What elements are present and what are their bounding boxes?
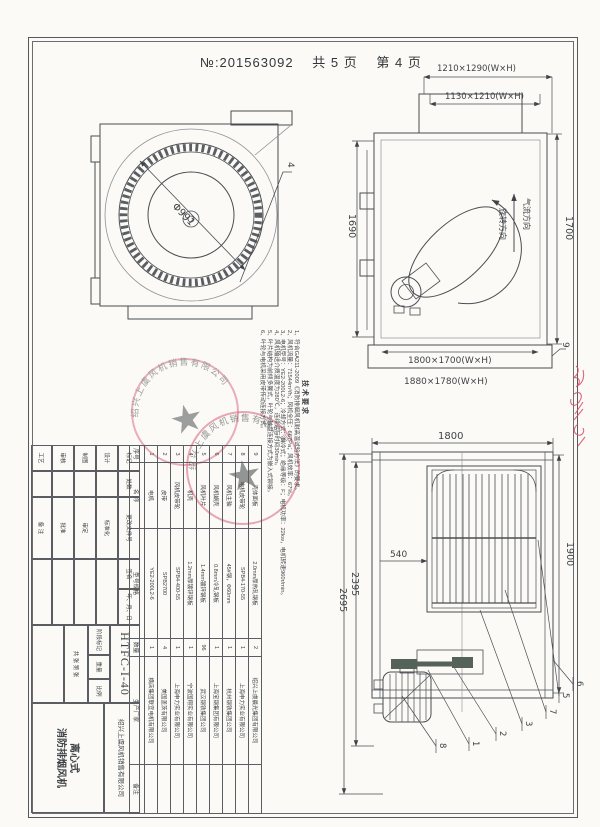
rear-leader-6: 6 bbox=[574, 681, 584, 686]
sheet-extra bbox=[31, 625, 64, 703]
base-dim-outer: 1880×1780(W×H) bbox=[404, 377, 488, 387]
tech-requirements-title: 技术要求 bbox=[300, 380, 310, 622]
dim-1690: 1690 bbox=[346, 214, 357, 238]
design-label: 设计 bbox=[96, 445, 118, 471]
side-view bbox=[352, 77, 566, 368]
dim-2695: 2695 bbox=[337, 588, 348, 612]
dim-540: 540 bbox=[390, 550, 407, 560]
leader-4-label: 4 bbox=[285, 162, 295, 168]
rev-date-label: 年、月、日 bbox=[118, 589, 140, 625]
rear-leader-3: 3 bbox=[523, 721, 533, 726]
scale-label: 比例 bbox=[88, 679, 110, 703]
product-name: 消防排烟风机 bbox=[55, 728, 68, 788]
airflow-direction-label: 气流方向 bbox=[522, 198, 532, 230]
tech-line: 2、风机流量：71544m³/h；风机全压：667Pa；风机效率：67%。 bbox=[285, 330, 292, 622]
parts-row-7: 7风机主轴45#钢，Φ60mm1杭州钢铁集团公司 bbox=[223, 446, 236, 814]
base-dim-inner: 1800×1700(W×H) bbox=[408, 356, 492, 366]
process-label: 工艺 bbox=[31, 445, 52, 471]
rev-count-label: 处数 bbox=[118, 471, 140, 497]
tech-line: 5、叶片结构为前倾多翼式，叶轮与轴盘连接方式为嵌入式铆接。 bbox=[265, 330, 272, 622]
dim-2395: 2395 bbox=[349, 572, 360, 596]
sheet-count: 共 张 第 张 bbox=[64, 625, 88, 703]
rear-leader-1: 1 bbox=[470, 741, 480, 746]
drawing-sheet: №:201563092 共 5 页 第 4 页 bbox=[0, 0, 600, 827]
parts-row-3: 3风机皮带轮SPB4-400-551上海申力实业有限公司 bbox=[171, 446, 184, 814]
rear-leader-2: 2 bbox=[497, 731, 507, 736]
approve-label: 批准 bbox=[52, 497, 74, 559]
draft-label: 制图 bbox=[74, 445, 96, 471]
tech-line: 3、电机型号：YE2-200L2-6；冷却方式：自冷式；绝缘等级：F；电机功率：… bbox=[279, 330, 286, 622]
rev-sign-label: 签名 bbox=[118, 559, 140, 589]
parts-row-4: 4机壳1.2mm厚镀锌钢板1宁波国翔实业有限公司 bbox=[184, 446, 197, 814]
standardize-signature bbox=[96, 559, 118, 625]
note-label: 备 注 bbox=[31, 497, 52, 559]
duct-dim-inner: 1130×1210(W×H) bbox=[445, 92, 524, 102]
parts-row-8: 8电机皮带轮SPB4-170-551上海申力实业有限公司 bbox=[236, 446, 249, 814]
rev-mark-label: 标记 bbox=[118, 445, 140, 471]
tech-requirements-block: 技术要求 1、符合GA211-2009《消防排烟风机耐高温试验方法》的要求。 2… bbox=[262, 330, 308, 622]
standardize-label: 标准化 bbox=[96, 497, 118, 559]
parts-row-5: 5风机叶片1.4mm镀锌钢板96武汉钢铁集团公司 bbox=[197, 446, 210, 814]
note-value bbox=[31, 559, 52, 625]
product-name-cell: 离心式 消防排烟风机 bbox=[31, 703, 104, 813]
design-signature bbox=[96, 471, 118, 497]
parts-row-9: 9壳体面板2.0mm厚热轧钢板2绍兴上虞晨光集团有限公司 bbox=[249, 446, 262, 814]
dark-drive-parts bbox=[391, 657, 473, 669]
product-type: 离心式 bbox=[68, 743, 81, 773]
company-name: 绍兴上虞风机销售有限公司 bbox=[104, 703, 140, 813]
title-block: 标记 处数 更改文件号 签名 年、月、日 设计 标准化 制图 审定 审核 批准 … bbox=[31, 445, 140, 813]
draft-signature bbox=[74, 471, 96, 497]
parts-row-6: 6风机蜗壳0.8mm冷轧钢板1上海宝钢集团有限公司 bbox=[210, 446, 223, 814]
rotation-direction-label: 旋转方向 bbox=[498, 208, 508, 240]
tech-line: 4、风机输送介质温度为280℃，连续运行时间30min。 bbox=[272, 330, 279, 622]
rotation-arrow bbox=[458, 200, 521, 304]
dim-1900: 1900 bbox=[564, 542, 575, 566]
duct-dim-outer: 1210×1290(W×H) bbox=[437, 64, 516, 74]
leader-9-label: 9 bbox=[560, 342, 570, 348]
ratify-label: 审定 bbox=[74, 497, 96, 559]
stage-mark-label: 阶段标记 bbox=[88, 625, 110, 655]
dim-1800: 1800 bbox=[438, 431, 463, 442]
ratify-signature bbox=[74, 559, 96, 625]
rear-view bbox=[339, 438, 573, 794]
approve-signature bbox=[52, 559, 74, 625]
model-number: HTFC-I-40 bbox=[110, 625, 140, 703]
parts-row-2: 2皮带SPB27004美国盖茨有限公司 bbox=[158, 446, 171, 814]
process-signature bbox=[31, 471, 52, 497]
handwritten-red-note bbox=[571, 366, 585, 446]
motor-end bbox=[391, 277, 421, 307]
parts-list: 9壳体面板2.0mm厚热轧钢板2绍兴上虞晨光集团有限公司 8电机皮带轮SPB4-… bbox=[140, 445, 262, 813]
leader-9-line bbox=[552, 349, 566, 356]
dim-1700: 1700 bbox=[563, 216, 574, 240]
check-signature bbox=[52, 471, 74, 497]
check-label: 审核 bbox=[52, 445, 74, 471]
tech-line: 1、符合GA211-2009《消防排烟风机耐高温试验方法》的要求。 bbox=[292, 330, 299, 622]
weight-label: 重量 bbox=[88, 655, 110, 679]
rear-leader-7: 7 bbox=[547, 709, 557, 714]
parts-row-1: 1电机YE2-200L2-61横店集团联宜电机有限公司 bbox=[145, 446, 158, 814]
rev-doc-label: 更改文件号 bbox=[118, 497, 140, 559]
rear-leader-5: 5 bbox=[560, 693, 570, 698]
rear-leader-8: 8 bbox=[437, 743, 447, 748]
